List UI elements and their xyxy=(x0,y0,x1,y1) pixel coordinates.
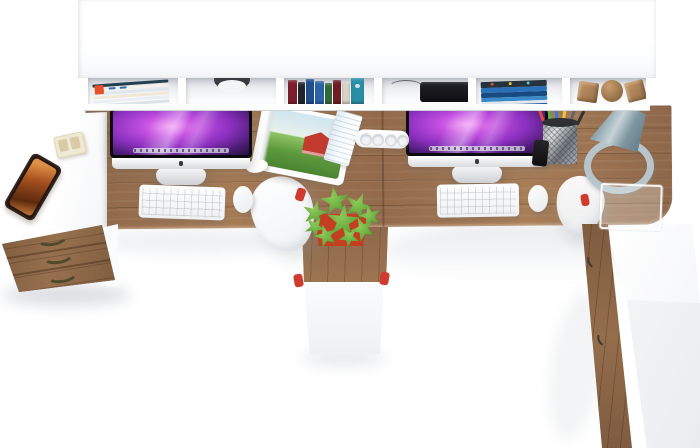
organizer-slot xyxy=(70,136,81,150)
drawer-handle xyxy=(41,245,75,267)
shelf-cubby-magazines xyxy=(88,78,178,104)
book-spine xyxy=(351,78,364,104)
keyboard-keys xyxy=(142,188,223,218)
acrylic-tray xyxy=(599,183,663,231)
black-media-box xyxy=(420,82,468,102)
imac-chin xyxy=(112,158,250,169)
dock-bar xyxy=(429,146,524,151)
power-socket xyxy=(385,134,397,146)
organizer-slot xyxy=(58,139,69,153)
mouse-right xyxy=(528,185,548,212)
cabinet-top-panel xyxy=(606,224,700,304)
pedestal-white-panel xyxy=(304,282,384,354)
spine-dot xyxy=(491,83,494,86)
keyboard-keys xyxy=(440,186,516,214)
desk-lamp xyxy=(578,102,650,184)
apple-logo-icon xyxy=(179,161,183,166)
power-socket xyxy=(360,133,372,145)
imac-stand xyxy=(452,166,502,183)
book-spine xyxy=(342,82,350,104)
cable-grommet xyxy=(214,78,250,90)
galaxy-wallpaper xyxy=(409,109,545,153)
shelf-cubby-media-box xyxy=(382,78,468,104)
potted-plant xyxy=(300,186,384,248)
keyboard-right xyxy=(437,183,520,217)
imac-right xyxy=(406,104,548,184)
shelf-top-panel xyxy=(78,0,656,78)
drawer-pedestal xyxy=(0,222,120,294)
shelf-cubby-grommet xyxy=(186,78,276,104)
wooden-sphere xyxy=(601,80,623,102)
shelf-cubby-wood-decor xyxy=(570,78,646,104)
power-strip xyxy=(355,129,410,149)
imac-chin xyxy=(408,156,546,167)
mouse-left xyxy=(233,186,253,213)
apple-logo-icon xyxy=(475,159,479,164)
book-spine xyxy=(315,81,324,104)
blue-book-stack xyxy=(481,80,548,104)
keyboard-left xyxy=(138,185,225,221)
spine-dot xyxy=(509,82,512,85)
magazine-logo-tab xyxy=(94,85,104,95)
shelf-cubby-books xyxy=(284,78,374,104)
power-socket xyxy=(372,134,384,146)
magazine-stack xyxy=(92,79,169,104)
book-spine xyxy=(333,80,341,104)
cable xyxy=(388,80,424,96)
imac-left xyxy=(110,106,252,186)
book-spine xyxy=(288,80,297,104)
shelf-cubby-row xyxy=(84,78,650,111)
wooden-cube xyxy=(624,79,646,103)
imac-stand xyxy=(156,168,206,185)
drawer-handle xyxy=(35,227,69,249)
shelf-cubby-blue-books xyxy=(476,78,562,104)
dock-bar xyxy=(133,148,228,153)
cabinet-side-panel xyxy=(624,300,700,448)
wooden-cube xyxy=(577,81,600,104)
desk-product-photo xyxy=(0,0,700,448)
book-spine xyxy=(298,82,305,104)
book-spine xyxy=(325,83,332,104)
black-gadget xyxy=(532,139,550,166)
imac-screen xyxy=(110,108,252,158)
drawer-handle xyxy=(45,264,79,286)
spine-dot xyxy=(527,81,530,84)
book-spine xyxy=(306,79,314,104)
side-cabinet xyxy=(560,222,700,448)
imac-screen xyxy=(406,106,548,156)
galaxy-wallpaper xyxy=(113,111,249,155)
book-logo-dot xyxy=(355,84,360,88)
book-row xyxy=(288,79,372,104)
